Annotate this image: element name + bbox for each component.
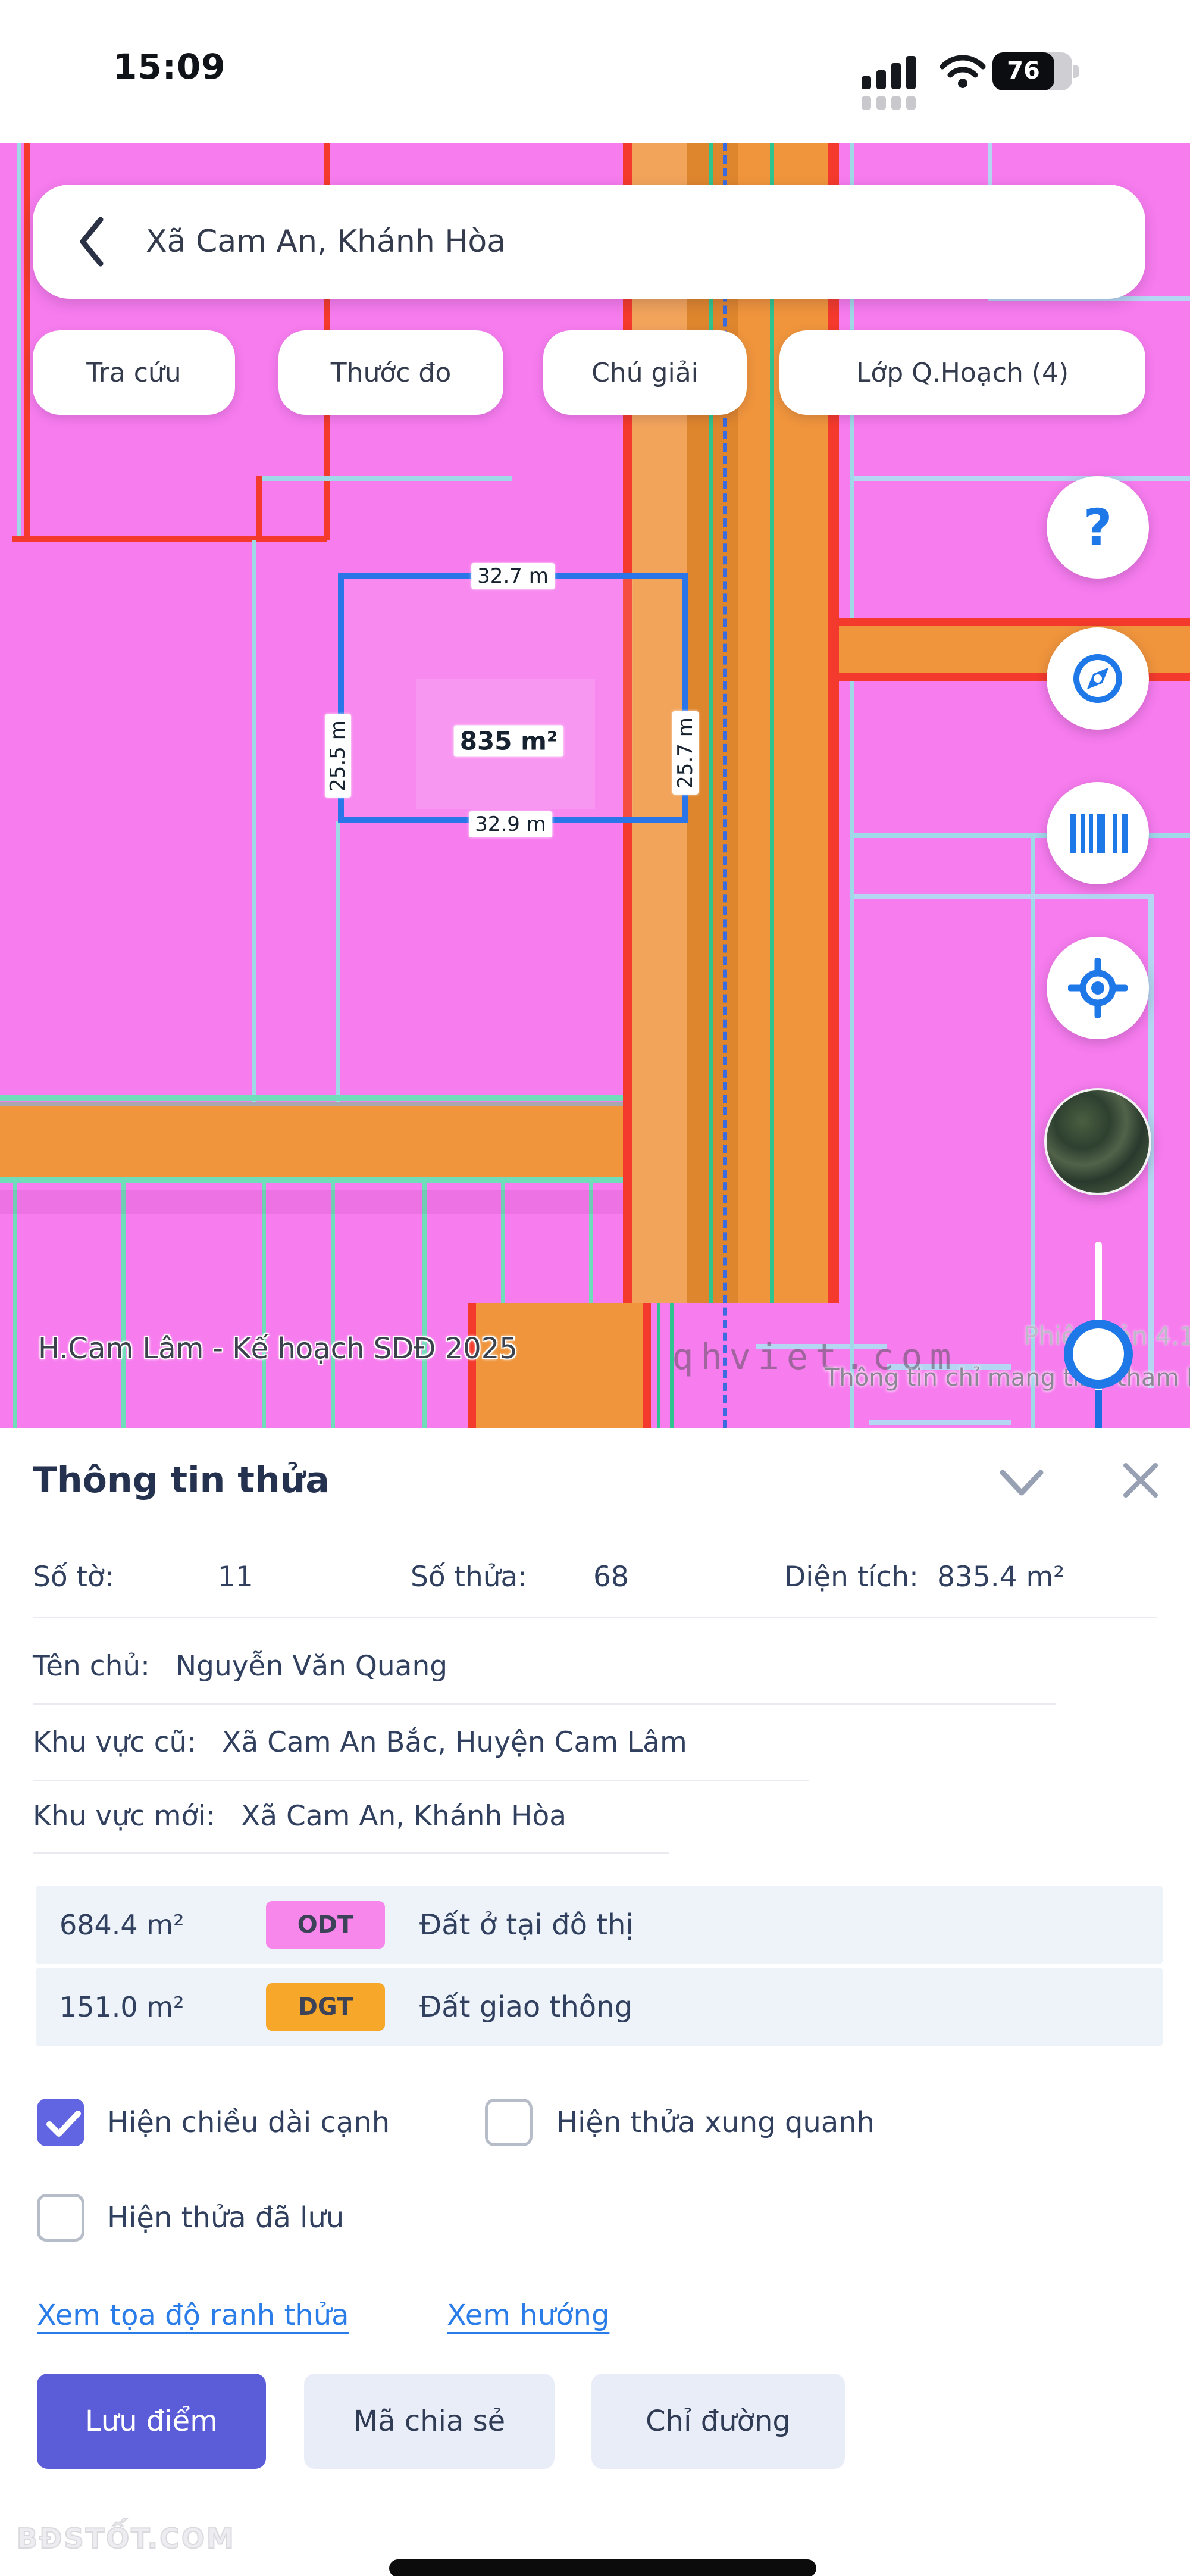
old-area-row: Khu vực cũ: Xã Cam An Bắc, Huyện Cam Lâm bbox=[33, 1726, 687, 1759]
old-area-value: Xã Cam An Bắc, Huyện Cam Lâm bbox=[222, 1726, 687, 1759]
home-indicator[interactable] bbox=[389, 2559, 816, 2576]
checkbox-label[interactable]: Hiện thửa đã lưu bbox=[107, 2201, 344, 2234]
road-edge bbox=[0, 1177, 632, 1183]
parcel-dim-right: 25.7 m bbox=[672, 711, 699, 795]
parcel-dim-left: 25.5 m bbox=[325, 714, 351, 798]
location-marker[interactable] bbox=[1064, 1320, 1133, 1389]
cadastral-map[interactable]: 32.7 m 25.5 m 25.7 m 32.9 m 835 m² qhvie… bbox=[0, 143, 1190, 1428]
road-marking bbox=[770, 143, 774, 1303]
plan-boundary-line bbox=[256, 476, 262, 540]
close-icon bbox=[1122, 1462, 1159, 1499]
chip-thuoc-do[interactable]: Thước đo bbox=[278, 330, 503, 415]
parcel-boundary-line bbox=[336, 821, 340, 1107]
road-edge-red bbox=[839, 618, 1190, 626]
land-area-value: 151.0 m² bbox=[59, 1968, 184, 2046]
parcel-boundary-line bbox=[262, 1177, 266, 1428]
parcel-boundary-line bbox=[13, 1177, 17, 1428]
dien-tich-value: 835.4 m² bbox=[937, 1561, 1064, 1593]
locate-button[interactable] bbox=[1047, 937, 1149, 1039]
compass-button[interactable] bbox=[1047, 627, 1149, 730]
search-input[interactable]: Xã Cam An, Khánh Hòa bbox=[146, 224, 506, 260]
check-icon bbox=[46, 2110, 82, 2139]
link-view-direction[interactable]: Xem hướng bbox=[447, 2299, 609, 2332]
plan-layer-label: H.Cam Lâm - Kế hoạch SDĐ 2025 bbox=[38, 1332, 518, 1365]
road-edge bbox=[0, 1095, 632, 1101]
parcel-dim-top: 32.7 m bbox=[471, 563, 555, 589]
chip-chu-giai[interactable]: Chú giải bbox=[543, 330, 747, 415]
land-code-badge: DGT bbox=[266, 1983, 385, 2031]
divider bbox=[33, 1617, 1157, 1618]
parcel-boundary-line bbox=[256, 476, 512, 481]
battery-icon: 76 bbox=[992, 52, 1079, 90]
plan-line bbox=[869, 1420, 1011, 1425]
checkbox-label[interactable]: Hiện thửa xung quanh bbox=[556, 2106, 875, 2139]
cellular-signal-icon bbox=[862, 55, 927, 114]
road-vertical-main bbox=[738, 143, 828, 1303]
owner-label: Tên chủ: bbox=[33, 1650, 150, 1683]
road-edge-red bbox=[828, 143, 839, 1303]
checkbox-2[interactable] bbox=[37, 2194, 84, 2242]
checkbox-1[interactable] bbox=[485, 2099, 533, 2146]
road-edge-red bbox=[468, 1303, 476, 1428]
crosshair-icon bbox=[1068, 958, 1128, 1018]
barcode-icon bbox=[1065, 806, 1130, 860]
road-marking bbox=[709, 143, 713, 1303]
divider bbox=[33, 1852, 669, 1854]
save-point-button[interactable]: Lưu điểm bbox=[37, 2374, 266, 2469]
so-to-label: Số tờ: bbox=[33, 1561, 114, 1593]
selected-parcel-outline[interactable] bbox=[338, 573, 688, 823]
collapse-panel-button[interactable] bbox=[995, 1456, 1048, 1509]
parcel-info-panel: Thông tin thửa Số tờ: 11 Số thửa: 68 Diệ… bbox=[0, 1428, 1190, 2576]
plan-line bbox=[851, 476, 1190, 481]
land-type-name: Đất giao thông bbox=[419, 1968, 632, 2046]
so-thua-value: 68 bbox=[593, 1561, 629, 1593]
owner-row: Tên chủ: Nguyễn Văn Quang bbox=[33, 1650, 447, 1683]
plan-boundary-line bbox=[24, 143, 30, 540]
new-area-value: Xã Cam An, Khánh Hòa bbox=[241, 1800, 566, 1833]
parcel-area-label: 835 m² bbox=[454, 726, 563, 757]
close-panel-button[interactable] bbox=[1114, 1453, 1167, 1507]
parcel-dim-bottom: 32.9 m bbox=[469, 811, 552, 837]
plan-line bbox=[851, 894, 1151, 899]
help-button[interactable]: ? bbox=[1047, 476, 1149, 579]
checkbox-0[interactable] bbox=[37, 2099, 84, 2146]
question-icon: ? bbox=[1083, 498, 1113, 557]
parcel-boundary-line bbox=[17, 143, 21, 540]
parcel-boundary-line bbox=[252, 540, 256, 1107]
land-area-value: 684.4 m² bbox=[59, 1886, 184, 1964]
chevron-left-icon bbox=[74, 215, 110, 268]
owner-value: Nguyễn Văn Quang bbox=[176, 1650, 447, 1683]
divider bbox=[33, 1703, 1056, 1705]
dien-tich-label: Diện tích: bbox=[784, 1561, 919, 1593]
new-area-label: Khu vực mới: bbox=[33, 1800, 215, 1833]
land-use-row: 684.4 m² ODT Đất ở tại đô thị bbox=[36, 1886, 1163, 1964]
marker-stem-bottom bbox=[1095, 1390, 1102, 1428]
so-to-value: 11 bbox=[218, 1561, 253, 1593]
land-code-badge: ODT bbox=[266, 1901, 385, 1949]
new-area-row: Khu vực mới: Xã Cam An, Khánh Hòa bbox=[33, 1800, 566, 1833]
wifi-icon bbox=[939, 52, 987, 92]
back-button[interactable] bbox=[57, 206, 128, 277]
site-watermark: BĐSTỐT.COM bbox=[17, 2522, 236, 2555]
land-use-row: 151.0 m² DGT Đất giao thông bbox=[36, 1968, 1163, 2046]
road-horizontal-left bbox=[0, 1106, 632, 1177]
clock: 15:09 bbox=[113, 46, 226, 87]
compass-icon bbox=[1068, 649, 1128, 708]
app-screen: 32.7 m 25.5 m 25.7 m 32.9 m 835 m² qhvie… bbox=[0, 0, 1190, 2576]
status-bar: 15:09 76 bbox=[0, 0, 1190, 143]
so-thua-label: Số thửa: bbox=[411, 1561, 527, 1593]
old-area-label: Khu vực cũ: bbox=[33, 1726, 196, 1759]
satellite-layer-button[interactable] bbox=[1044, 1088, 1151, 1195]
parcel-boundary-line bbox=[121, 1177, 126, 1428]
chip-lop-quy-hoach[interactable]: Lớp Q.Hoạch (4) bbox=[779, 330, 1145, 415]
divider bbox=[33, 1780, 809, 1781]
chip-tra-cuu[interactable]: Tra cứu bbox=[33, 330, 235, 415]
checkbox-label[interactable]: Hiện chiều dài cạnh bbox=[107, 2106, 390, 2139]
directions-button[interactable]: Chỉ đường bbox=[591, 2374, 845, 2469]
plan-boundary-line bbox=[12, 536, 327, 542]
link-view-coordinates[interactable]: Xem tọa độ ranh thửa bbox=[37, 2299, 349, 2332]
chevron-down-icon bbox=[998, 1468, 1045, 1498]
land-type-name: Đất ở tại đô thị bbox=[419, 1886, 634, 1964]
parcel-boundary-line bbox=[422, 1177, 427, 1428]
search-bar[interactable]: Xã Cam An, Khánh Hòa bbox=[33, 185, 1145, 299]
battery-percent: 76 bbox=[992, 52, 1054, 90]
barcode-button[interactable] bbox=[1047, 782, 1149, 884]
panel-title: Thông tin thửa bbox=[33, 1459, 330, 1501]
parcel-boundary-line bbox=[331, 1177, 335, 1428]
share-code-button[interactable]: Mã chia sẻ bbox=[304, 2374, 555, 2469]
